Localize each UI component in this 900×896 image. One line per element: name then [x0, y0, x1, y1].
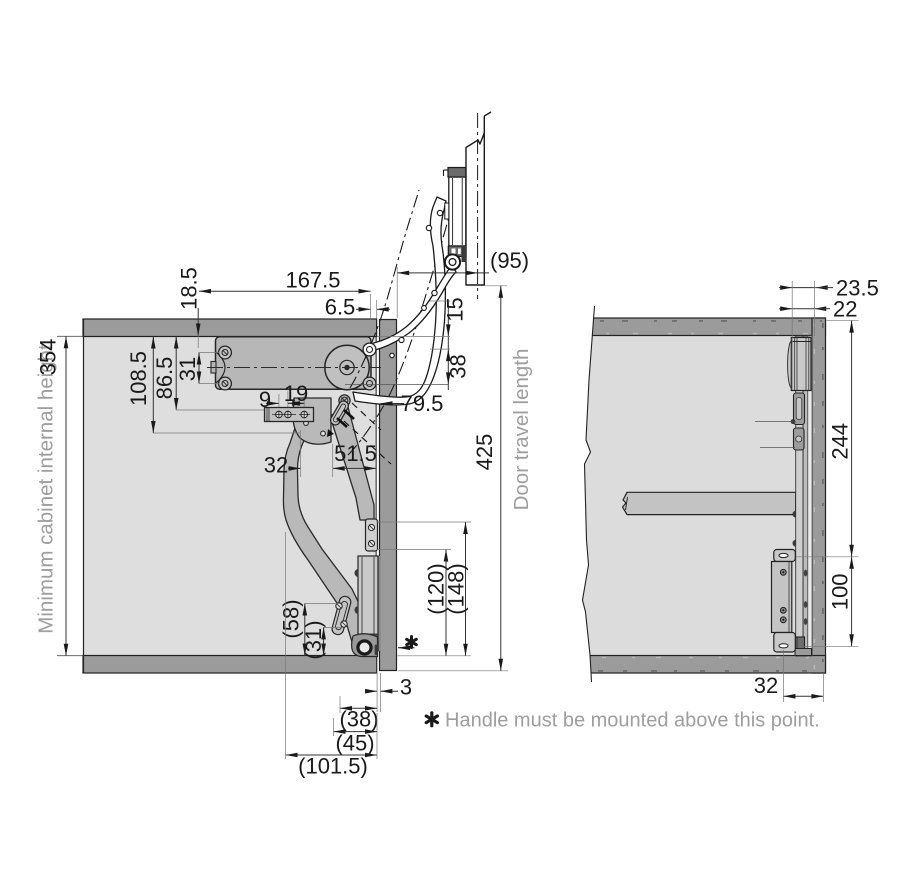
svg-text:15: 15	[442, 297, 467, 321]
svg-text:(45): (45)	[335, 730, 374, 755]
svg-text:86.5: 86.5	[152, 357, 177, 400]
svg-text:Door travel length: Door travel length	[510, 349, 533, 511]
svg-text:244: 244	[828, 423, 853, 460]
svg-text:22: 22	[833, 297, 857, 322]
svg-text:100: 100	[828, 573, 853, 610]
svg-text:(148): (148)	[443, 563, 468, 614]
svg-text:108.5: 108.5	[126, 351, 151, 406]
svg-text:79.5: 79.5	[401, 391, 444, 416]
svg-text:425: 425	[472, 434, 497, 471]
svg-text:(31): (31)	[301, 620, 326, 659]
svg-text:354: 354	[35, 339, 60, 376]
svg-text:6.5: 6.5	[325, 295, 356, 320]
svg-text:19: 19	[284, 381, 308, 406]
svg-text:32: 32	[264, 453, 288, 478]
svg-text:51.5: 51.5	[334, 441, 377, 466]
svg-text:167.5: 167.5	[285, 268, 340, 293]
svg-text:(38): (38)	[339, 707, 378, 732]
svg-text:Minimum cabinet internal heigh: Minimum cabinet internal height	[34, 344, 57, 634]
svg-text:32: 32	[754, 673, 778, 698]
svg-text:31: 31	[175, 357, 200, 381]
svg-text:(95): (95)	[490, 248, 529, 273]
svg-text:18.5: 18.5	[176, 267, 201, 310]
svg-text:Handle must be mounted above t: Handle must be mounted above this point.	[445, 710, 820, 732]
svg-text:(58): (58)	[278, 599, 303, 638]
svg-text:(101.5): (101.5)	[298, 754, 368, 779]
svg-text:38: 38	[445, 354, 470, 378]
svg-text:3: 3	[400, 675, 412, 700]
